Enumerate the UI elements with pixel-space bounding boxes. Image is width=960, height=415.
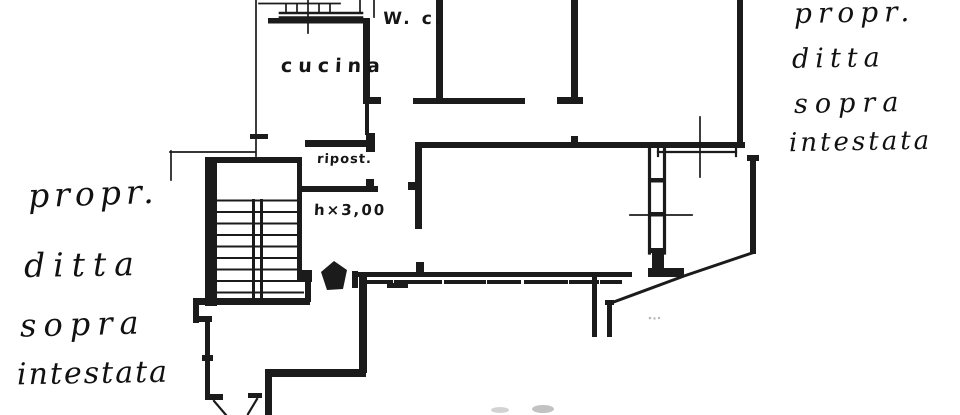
boundary-lines [170,0,256,180]
ownership-note-line: ditta [792,42,886,75]
ownership-note-line: sopra [794,87,906,120]
scan-artifacts [491,317,660,413]
floor-plan-page: cucina W. c. ripost. h×3,00 propr. ditta… [0,0,960,415]
lower-room-walls [265,273,367,415]
ownership-note-line: sopra [20,303,146,344]
ownership-note-line: ditta [24,244,143,285]
ownership-note-line: intestata [17,355,170,393]
ownership-note-line: propr. [27,172,159,216]
entry-doors [205,393,262,415]
window-symbol-right [630,148,692,277]
column-marker [321,261,347,290]
kitchen-label: cucina [280,55,386,77]
ceiling-height-label: h×3,00 [314,201,387,219]
storage-label: ripost. [317,152,373,167]
stairs-center-rail [252,199,263,303]
kitchen-walls [250,18,381,152]
ownership-note-line: propr. [794,0,916,30]
wc-label: W. c. [382,9,444,29]
perimeter-right-lower [592,155,759,337]
main-room-walls [352,136,745,288]
ownership-note-line: intestata [789,126,933,158]
balcony-window-symbol [259,0,374,33]
staircase [193,157,312,398]
right-outer-wall-upper [737,0,743,146]
